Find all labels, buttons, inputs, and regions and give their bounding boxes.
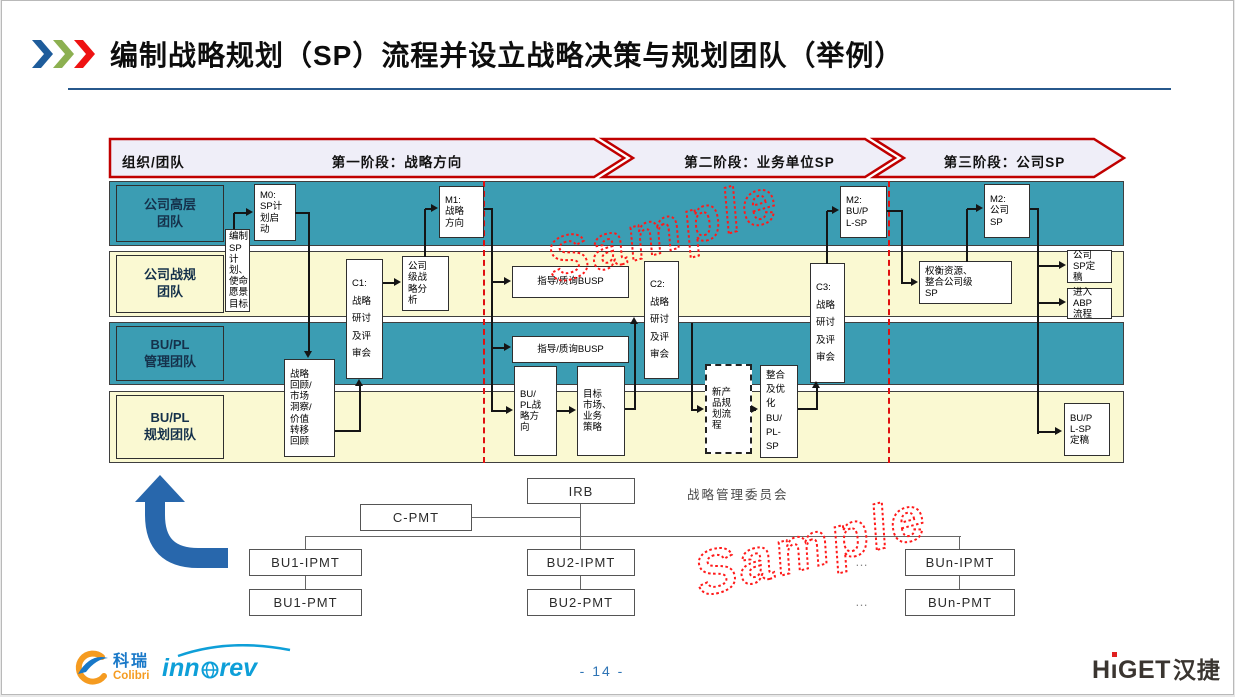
connector-line bbox=[966, 209, 968, 262]
innorev-text-right: rev bbox=[220, 654, 258, 683]
lane-label: 公司高层 团队 bbox=[144, 197, 196, 231]
org-box-bunipmt: BUn-IPMT bbox=[905, 549, 1015, 576]
flow-box-quanheng: 权衡资源、 整合公司级 SP bbox=[919, 261, 1012, 304]
connector-line bbox=[295, 212, 309, 214]
flow-box-bianzhi: 编制 SP计 划、 使命 愿景 目标 bbox=[225, 229, 250, 312]
arrowhead-icon bbox=[355, 379, 363, 386]
colibri-logo: 科瑞 Colibri bbox=[70, 649, 149, 687]
org-connector-line bbox=[305, 536, 961, 537]
org-box-bu1pmt: BU1-PMT bbox=[249, 589, 362, 616]
connector-line bbox=[901, 210, 903, 284]
header-org-label: 组织/团队 bbox=[122, 151, 185, 171]
org-box-cpmt: C-PMT bbox=[360, 504, 472, 531]
flow-box-c3: C3: 战略 研讨 及评 审会 bbox=[810, 263, 845, 383]
connector-line bbox=[491, 208, 493, 412]
org-connector-line bbox=[305, 536, 306, 550]
arrowhead-icon bbox=[504, 343, 511, 351]
flow-box-fenxi: 公司 级战 略分 析 bbox=[402, 256, 449, 311]
title-underline bbox=[68, 88, 1171, 90]
higet-red-dot-icon bbox=[1112, 652, 1117, 657]
title-row: 编制战略规划（SP）流程并设立战略决策与规划团队（举例） bbox=[32, 34, 903, 74]
org-connector-line bbox=[959, 576, 960, 590]
page-number: - 14 - bbox=[547, 663, 657, 679]
arrowhead-icon bbox=[832, 206, 839, 214]
connector-line bbox=[233, 213, 235, 229]
arrowhead-icon bbox=[812, 381, 820, 388]
connector-line bbox=[359, 385, 361, 431]
flow-box-m1: M1: 战略 方向 bbox=[439, 186, 484, 238]
colibri-logo-icon bbox=[70, 649, 110, 687]
org-connector-line bbox=[580, 504, 581, 537]
lane-label: BU/PL 管理团队 bbox=[144, 337, 196, 371]
connector-line bbox=[634, 323, 636, 409]
flow-box-zhidao2: 指导/质询BUSP bbox=[512, 336, 629, 363]
innorev-globe-icon bbox=[201, 661, 219, 679]
org-box-bunpmt: BUn-PMT bbox=[905, 589, 1015, 616]
connector-line bbox=[335, 430, 361, 432]
connector-line bbox=[424, 209, 426, 257]
higet-text-rest: GET bbox=[1118, 656, 1171, 685]
flow-box-fangxiang: BU/ PL战 略方 向 bbox=[514, 366, 557, 456]
lane-exec-label-box: 公司高层 团队 bbox=[116, 185, 224, 242]
flow-box-abp: 进入 ABP 流程 bbox=[1067, 288, 1112, 319]
flow-box-xinchanpin: 新产 品规 划流 程 bbox=[705, 364, 752, 454]
org-connector-line bbox=[580, 536, 581, 550]
stage-1-label: 第一阶段：战略方向 bbox=[252, 151, 542, 171]
lane-bupl-mgmt-label-box: BU/PL 管理团队 bbox=[116, 326, 224, 381]
triple-chevron-icon bbox=[32, 39, 96, 69]
arrowhead-icon bbox=[1055, 427, 1062, 435]
org-box-irb: IRB bbox=[527, 478, 635, 504]
colibri-cn-text: 科瑞 bbox=[113, 654, 149, 670]
flow-box-mubiao: 目标 市场、 业务 策略 bbox=[577, 366, 625, 456]
ellipsis: … bbox=[847, 594, 877, 609]
arrowhead-icon bbox=[569, 406, 576, 414]
org-box-bu2ipmt: BU2-IPMT bbox=[527, 549, 635, 576]
lane-corp-plan-label-box: 公司战规 团队 bbox=[116, 255, 224, 313]
org-box-bu1ipmt: BU1-IPMT bbox=[249, 549, 362, 576]
flow-box-buplding: BU/P L-SP 定稿 bbox=[1064, 403, 1110, 456]
connector-line bbox=[826, 211, 828, 264]
arrowhead-icon bbox=[630, 317, 638, 324]
page-title: 编制战略规划（SP）流程并设立战略决策与规划团队（举例） bbox=[110, 34, 903, 74]
higet-cn-text: 汉捷 bbox=[1173, 651, 1221, 685]
arrowhead-icon bbox=[1059, 261, 1066, 269]
arrowhead-icon bbox=[506, 406, 513, 414]
arrowhead-icon bbox=[976, 204, 983, 212]
higet-text-h: H bbox=[1092, 656, 1111, 685]
higet-i: ı bbox=[1111, 656, 1118, 685]
flow-box-c1: C1: 战略 研讨 及评 审会 bbox=[346, 259, 383, 379]
org-connector-line bbox=[472, 517, 581, 518]
stage-3-label: 第三阶段：公司SP bbox=[907, 151, 1102, 171]
arrowhead-icon bbox=[431, 204, 438, 212]
connector-line bbox=[308, 212, 310, 353]
arrowhead-icon bbox=[751, 405, 758, 413]
org-connector-line bbox=[305, 576, 306, 590]
committee-label: 战略管理委员会 bbox=[687, 484, 789, 503]
arrowhead-icon bbox=[911, 278, 918, 286]
arrowhead-icon bbox=[246, 208, 253, 216]
flow-box-m2b: M2: 公司 SP bbox=[984, 184, 1030, 238]
stage-chevron-band bbox=[2, 1, 1234, 201]
connector-line bbox=[798, 408, 818, 410]
flow-box-m0: M0: SP计 划启 动 bbox=[254, 184, 296, 241]
lane-label: BU/PL 规划团队 bbox=[144, 410, 196, 444]
innorev-logo: inn rev bbox=[162, 654, 257, 683]
arrowhead-icon bbox=[504, 277, 511, 285]
flow-box-zhidao1: 指导/质询BUSP bbox=[512, 266, 629, 298]
connector-line bbox=[1037, 208, 1039, 434]
lane-bupl-plan-label-box: BU/PL 规划团队 bbox=[116, 395, 224, 459]
flow-box-spding: 公司 SP定 稿 bbox=[1067, 250, 1112, 283]
org-connector-line bbox=[580, 576, 581, 590]
stage-divider-2 bbox=[888, 181, 890, 463]
org-connector-line bbox=[959, 536, 960, 550]
flow-box-c2: C2: 战略 研讨 及评 审会 bbox=[644, 261, 679, 379]
colibri-en-text: Colibri bbox=[113, 671, 149, 683]
arrowhead-icon bbox=[394, 278, 401, 286]
connector-line bbox=[816, 387, 818, 409]
connector-line bbox=[691, 323, 693, 411]
arrowhead-icon bbox=[697, 405, 704, 413]
arrowhead-icon bbox=[1059, 298, 1066, 306]
arrowhead-icon bbox=[304, 351, 312, 358]
flow-box-huigu: 战略 回顾/ 市场 洞察/ 价值 转移 回顾 bbox=[284, 359, 335, 457]
flow-box-m2a: M2: BU/P L-SP bbox=[840, 186, 887, 238]
ellipsis: … bbox=[847, 554, 877, 569]
org-box-bu2pmt: BU2-PMT bbox=[527, 589, 635, 616]
higet-logo: HıGET 汉捷 bbox=[1092, 651, 1221, 685]
innorev-text-left: inn bbox=[162, 654, 200, 683]
stage-2-label: 第二阶段：业务单位SP bbox=[652, 151, 867, 171]
slide: 编制战略规划（SP）流程并设立战略决策与规划团队（举例） 组织/团队 第一阶段：… bbox=[1, 0, 1234, 695]
flow-box-zhenghe: 整合 及优 化 BU/ PL- SP bbox=[760, 365, 798, 458]
lane-label: 公司战规 团队 bbox=[144, 267, 196, 301]
